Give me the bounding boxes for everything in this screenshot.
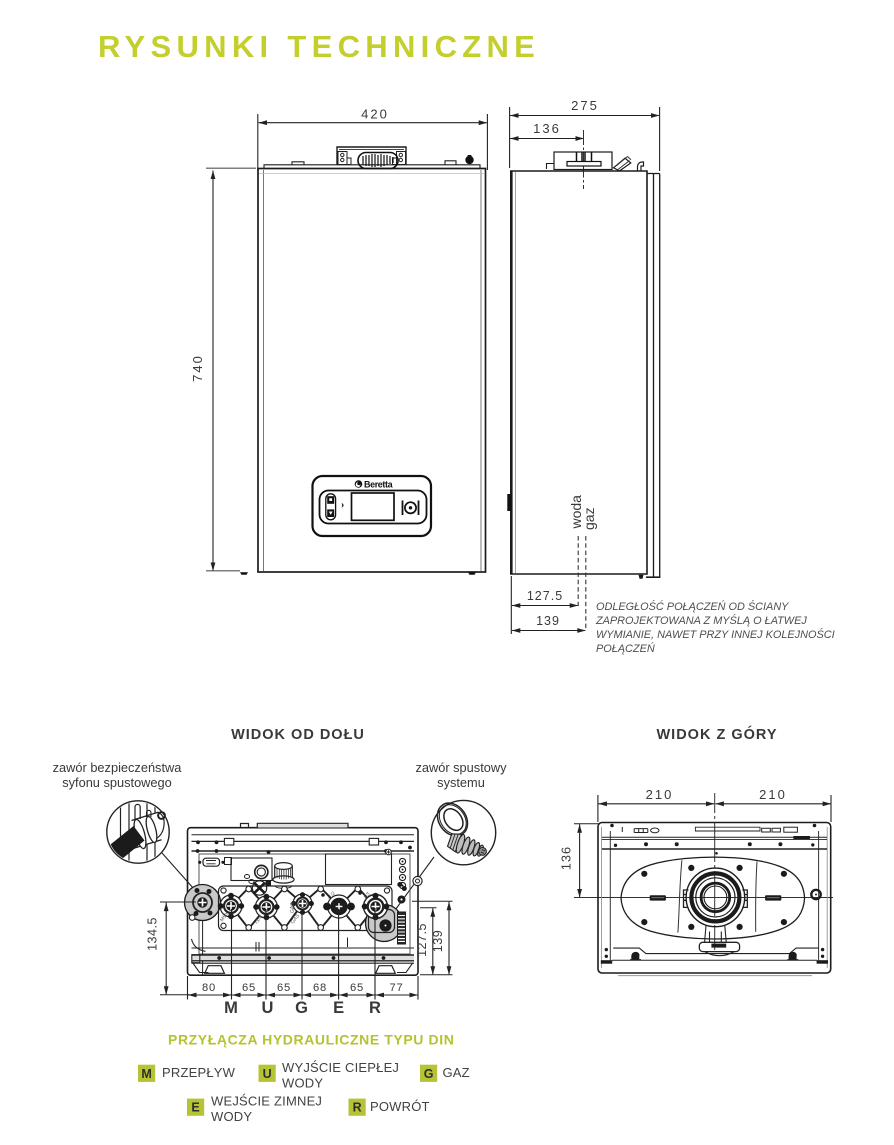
svg-text:210: 210	[646, 787, 674, 802]
svg-text:gaz: gaz	[581, 507, 597, 530]
svg-text:Beretta: Beretta	[364, 480, 394, 490]
svg-text:139: 139	[431, 930, 445, 952]
svg-text:ZAPROJEKTOWANA Z MYŚLĄ O ŁATWE: ZAPROJEKTOWANA Z MYŚLĄ O ŁATWEJ	[595, 614, 807, 627]
svg-text:zawór spustowy: zawór spustowy	[415, 760, 507, 775]
svg-text:R: R	[369, 999, 381, 1017]
svg-text:WIDOK OD DOŁU: WIDOK OD DOŁU	[231, 727, 365, 743]
svg-text:68: 68	[313, 982, 327, 994]
svg-text:WYJŚCIE CIEPŁEJ: WYJŚCIE CIEPŁEJ	[282, 1060, 399, 1075]
svg-text:65: 65	[277, 982, 291, 994]
svg-text:136: 136	[533, 121, 561, 136]
svg-text:zawór bezpieczeństwa: zawór bezpieczeństwa	[53, 760, 183, 775]
svg-text:136: 136	[559, 846, 574, 870]
svg-text:G: G	[424, 1067, 434, 1081]
svg-text:WODY: WODY	[282, 1075, 323, 1090]
svg-text:G: G	[295, 999, 308, 1017]
svg-text:GAS: GAS	[290, 913, 302, 926]
svg-text:systemu: systemu	[437, 775, 485, 790]
svg-text:210: 210	[759, 787, 787, 802]
svg-text:ODLEGŁOŚĆ POŁĄCZEŃ OD ŚCIANY: ODLEGŁOŚĆ POŁĄCZEŃ OD ŚCIANY	[596, 600, 789, 613]
svg-text:R: R	[353, 1101, 362, 1115]
svg-text:POWRÓT: POWRÓT	[370, 1099, 430, 1114]
svg-text:M: M	[224, 999, 238, 1017]
svg-text:U: U	[262, 999, 274, 1017]
svg-text:420: 420	[361, 107, 389, 122]
svg-text:PRZYŁĄCZA HYDRAULICZNE TYPU DI: PRZYŁĄCZA HYDRAULICZNE TYPU DIN	[168, 1032, 454, 1048]
svg-text:740: 740	[190, 354, 205, 382]
svg-text:syfonu spustowego: syfonu spustowego	[62, 775, 172, 790]
svg-text:65: 65	[242, 982, 256, 994]
svg-text:127.5: 127.5	[415, 923, 429, 957]
svg-text:WYMIANIE, NAWET PRZY INNEJ KOL: WYMIANIE, NAWET PRZY INNEJ KOLEJNOŚCI	[596, 628, 835, 641]
svg-text:POŁĄCZEŃ: POŁĄCZEŃ	[596, 642, 655, 655]
svg-text:E: E	[191, 1101, 199, 1115]
svg-text:M: M	[141, 1067, 151, 1081]
svg-text:127.5: 127.5	[527, 589, 563, 603]
svg-text:WIDOK Z GÓRY: WIDOK Z GÓRY	[656, 725, 777, 743]
svg-text:PRZEPŁYW: PRZEPŁYW	[162, 1065, 236, 1080]
svg-text:U: U	[263, 1067, 272, 1081]
svg-text:GAS: GAS	[290, 902, 296, 913]
svg-text:GAZ: GAZ	[443, 1065, 470, 1080]
svg-text:275: 275	[571, 98, 599, 113]
svg-text:E: E	[333, 999, 344, 1017]
svg-text:WEJŚCIE ZIMNEJ: WEJŚCIE ZIMNEJ	[211, 1094, 322, 1109]
svg-text:139: 139	[536, 614, 560, 628]
svg-text:134.5: 134.5	[146, 917, 160, 951]
svg-text:77: 77	[389, 982, 403, 994]
svg-text:RYSUNKI TECHNICZNE: RYSUNKI TECHNICZNE	[98, 29, 540, 64]
svg-text:80: 80	[202, 982, 216, 994]
svg-text:WODY: WODY	[211, 1109, 252, 1124]
svg-text:65: 65	[350, 982, 364, 994]
